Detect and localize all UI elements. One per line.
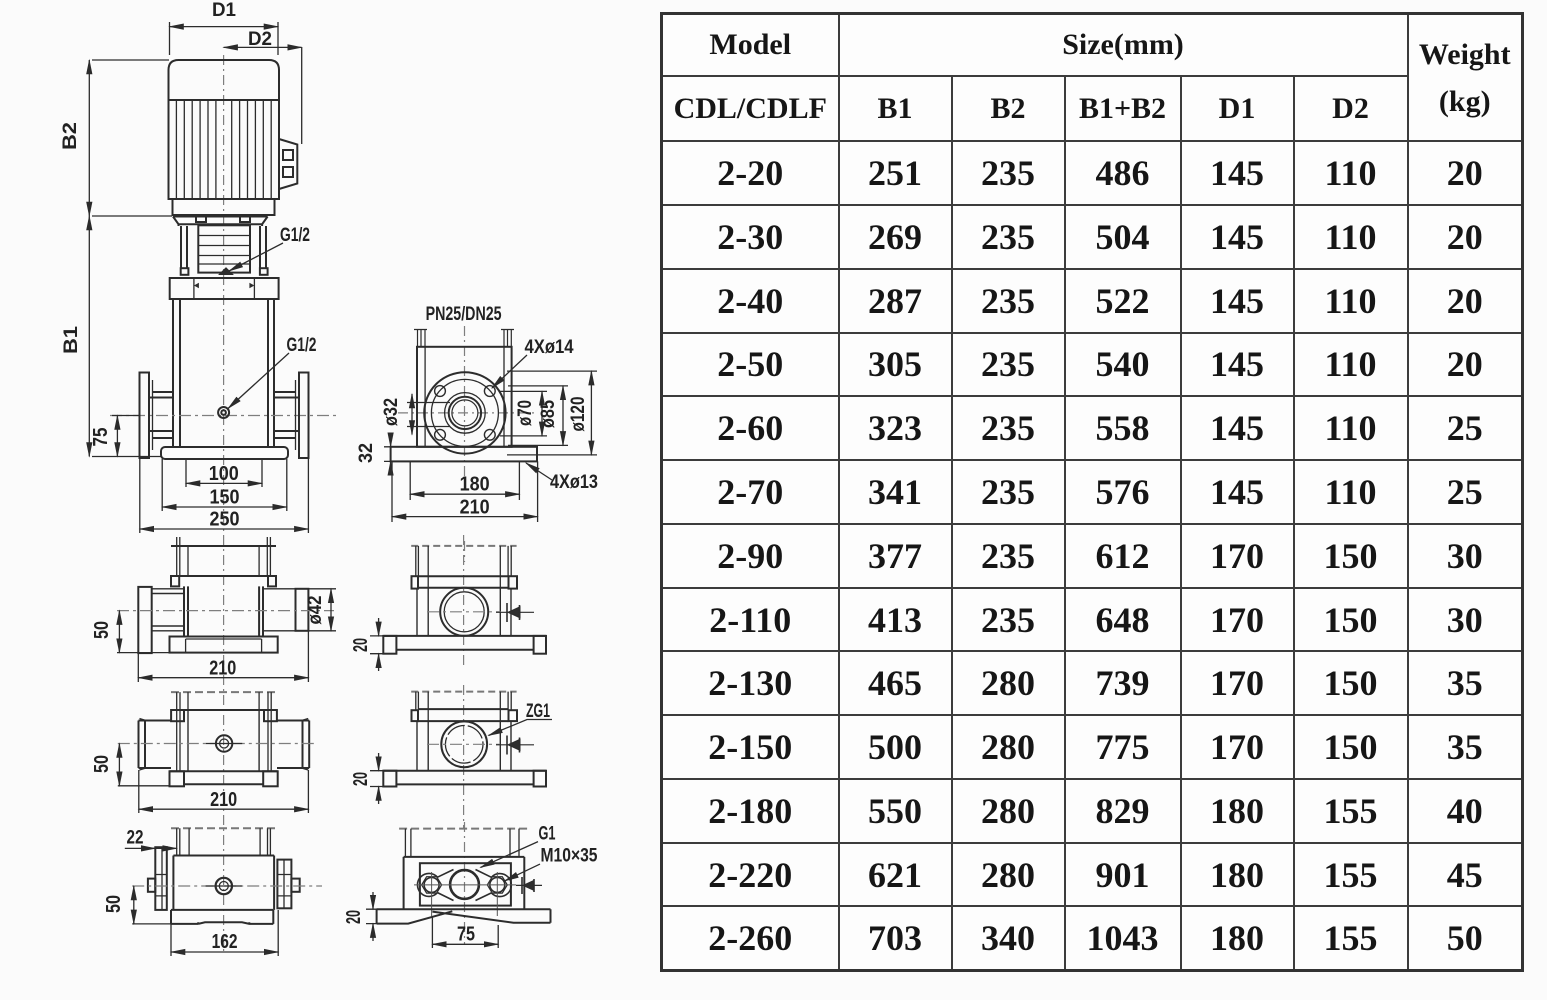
svg-text:210: 210 xyxy=(209,658,236,680)
svg-text:210: 210 xyxy=(210,789,237,811)
svg-text:180: 180 xyxy=(460,474,490,496)
svg-text:75: 75 xyxy=(457,924,475,946)
svg-text:M10×35: M10×35 xyxy=(541,846,598,867)
svg-text:250: 250 xyxy=(210,509,240,531)
svg-text:G1/2: G1/2 xyxy=(287,335,317,356)
svg-text:20: 20 xyxy=(350,638,372,652)
svg-text:G1: G1 xyxy=(539,824,556,845)
svg-text:162: 162 xyxy=(212,931,238,953)
svg-text:75: 75 xyxy=(90,428,112,447)
svg-text:D2: D2 xyxy=(248,29,272,50)
svg-text:22: 22 xyxy=(127,828,144,849)
svg-text:32: 32 xyxy=(356,443,377,463)
svg-text:ø120: ø120 xyxy=(568,397,589,432)
svg-text:210: 210 xyxy=(460,497,490,519)
svg-text:G1/2: G1/2 xyxy=(280,225,310,246)
svg-text:50: 50 xyxy=(103,895,125,913)
svg-text:ø70: ø70 xyxy=(515,400,536,426)
svg-text:100: 100 xyxy=(209,463,239,485)
svg-text:4Xø13: 4Xø13 xyxy=(550,472,598,493)
svg-text:ø85: ø85 xyxy=(538,400,559,428)
svg-text:20: 20 xyxy=(343,910,365,924)
svg-text:B2: B2 xyxy=(60,122,81,150)
svg-text:150: 150 xyxy=(210,487,240,509)
svg-text:PN25/DN25: PN25/DN25 xyxy=(426,304,502,325)
svg-text:ø32: ø32 xyxy=(381,398,402,426)
svg-text:4Xø14: 4Xø14 xyxy=(525,337,574,358)
svg-text:20: 20 xyxy=(350,772,372,786)
svg-text:50: 50 xyxy=(91,755,113,773)
svg-text:D1: D1 xyxy=(212,0,236,21)
svg-text:ø42: ø42 xyxy=(305,596,326,625)
svg-text:B1: B1 xyxy=(61,326,82,354)
svg-text:50: 50 xyxy=(91,621,113,639)
